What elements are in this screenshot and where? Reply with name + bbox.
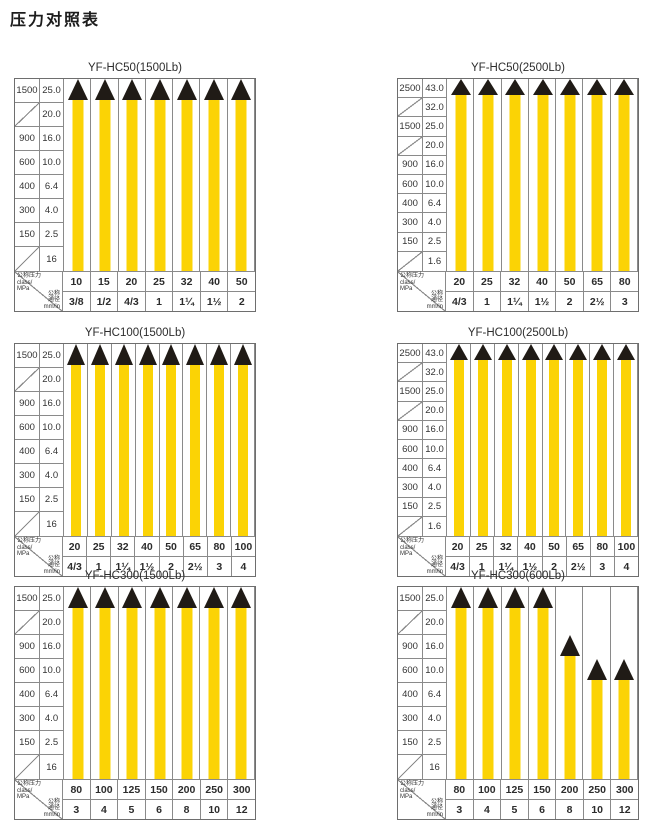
pressure-table: 150025.020.090016.060010.04006.43004.015… [14,343,256,577]
axis-mpa-cell: 2.5 [423,731,446,754]
dn-value-row: 3/81/24/311¼1½2 [63,292,255,311]
class-value-cell: 65 [183,537,207,556]
bar [619,679,630,779]
class-value-cell: 32 [500,272,528,291]
axis-diagonal-cell [398,252,423,271]
class-value-cell: 65 [583,272,611,291]
class-value-row: 80100125150200250300 [63,780,255,800]
class-value-cell: 20 [63,537,86,556]
axis-mpa-cell: 25.0 [40,587,63,610]
axis-mpa-cell: 20.0 [40,611,63,634]
axis-mpa-cell: 32.0 [423,363,446,381]
axis-row: 3004.0 [398,707,446,731]
axis-mpa-cell: 16 [40,755,63,779]
chart-yf-hc300-600lb: YF-HC300(600Lb)150025.020.090016.060010.… [397,568,639,820]
axis-row: 60010.0 [15,151,63,175]
axis-row: 150025.0 [398,382,446,401]
axis-row: 4006.4 [398,459,446,478]
axis-mpa-cell: 10.0 [40,659,63,682]
bottom-rows: 公称压力class/MPa公称通径mm/in801001251502002503… [398,779,638,819]
bar [154,607,165,779]
dn-value-cell: 3/8 [63,292,90,311]
dn-value-cell: 1½ [200,292,228,311]
bar [455,94,466,271]
axis-mpa-cell: 16.0 [423,156,446,174]
triangle-marker-icon [560,635,580,656]
triangle-marker-icon [478,587,498,608]
chart-yf-hc100-2500lb: YF-HC100(2500Lb)250043.032.0150025.020.0… [397,325,639,577]
axis-diagonal-cell [398,137,423,155]
axis-mpa-cell: 6.4 [40,175,63,198]
triangle-marker-icon [210,344,228,365]
triangle-marker-icon [95,79,115,100]
axis-class-cell: 1500 [398,382,423,400]
bar [99,607,110,779]
axis-diagonal-cell [398,611,423,634]
axis-mpa-cell: 32.0 [423,98,446,116]
triangle-marker-icon [614,79,634,95]
corner-pressure-line: 公称压力 [400,538,424,545]
axis-class-cell: 900 [398,635,423,658]
axis-mpa-cell: 20.0 [40,103,63,126]
triangle-marker-icon [150,79,170,100]
bottom-rows: 公称压力class/MPa公称通径mm/in801001251502002503… [15,779,255,819]
corner-cell: 公称压力class/MPa公称通径mm/in [15,780,63,819]
corner-bore-line: mm/in [44,812,60,819]
class-value-cell: 80 [446,780,473,799]
bar [592,679,603,779]
corner-cell: 公称压力class/MPa公称通径mm/in [15,272,63,311]
bar [502,359,512,536]
axis-class-cell: 150 [15,488,40,511]
dn-value-cell: 3 [610,292,638,311]
axis-row: 150025.0 [15,79,63,103]
triangle-marker-icon [478,79,498,95]
axis-mpa-cell: 16.0 [40,392,63,415]
bar [537,94,548,271]
bottom-value-rows: 80100125150200250300345681012 [446,780,638,819]
y-axis: 150025.020.090016.060010.04006.43004.015… [398,587,446,779]
axis-row: 60010.0 [398,659,446,683]
chart-title: YF-HC300(1500Lb) [14,568,256,584]
axis-diagonal-cell [15,368,40,391]
class-value-cell: 65 [566,537,590,556]
axis-mpa-cell: 25.0 [40,79,63,102]
axis-mpa-cell: 10.0 [423,175,446,193]
dn-value-cell: 12 [227,800,255,819]
pressure-table: 250043.032.0150025.020.090016.060010.040… [397,78,639,312]
axis-mpa-cell: 4.0 [40,464,63,487]
axis-row: 90016.0 [15,392,63,416]
triangle-marker-icon [231,587,251,608]
bar [99,99,110,271]
corner-bore-line: mm/in [44,304,60,311]
class-value-cell: 40 [200,272,228,291]
axis-row: 150025.0 [15,344,63,368]
axis-mpa-cell: 16 [40,247,63,271]
dn-value-cell: 1 [145,292,173,311]
class-value-cell: 100 [473,780,501,799]
y-axis: 150025.020.090016.060010.04006.43004.015… [15,79,63,271]
bar [549,359,559,536]
bar [209,607,220,779]
axis-class-cell: 150 [15,223,40,246]
triangle-marker-icon [587,79,607,95]
class-value-cell: 300 [227,780,255,799]
axis-row: 20.0 [15,368,63,392]
bar [95,364,105,536]
bar [482,94,493,271]
axis-mpa-cell: 20.0 [423,402,446,420]
axis-mpa-cell: 16.0 [40,635,63,658]
axis-row: 4006.4 [15,440,63,464]
corner-bore-label: 公称通径mm/in [44,291,60,311]
axis-row: 32.0 [398,98,446,117]
axis-row: 20.0 [15,611,63,635]
class-value-cell: 25 [145,272,173,291]
axis-row: 250043.0 [398,344,446,363]
class-value-cell: 200 [555,780,583,799]
axis-mpa-cell: 6.4 [40,440,63,463]
chart-yf-hc50-2500lb: YF-HC50(2500Lb)250043.032.0150025.020.09… [397,60,639,312]
axis-diagonal-cell [398,755,423,779]
class-value-cell: 40 [528,272,556,291]
axis-class-cell: 600 [398,175,423,193]
axis-row: 4006.4 [398,194,446,213]
dn-value-cell: 10 [200,800,228,819]
triangle-marker-icon [474,344,492,360]
triangle-marker-icon [617,344,635,360]
bar [564,655,575,779]
plot-area [446,587,638,779]
dn-value-cell: 3 [446,800,473,819]
corner-pressure-label: 公称压力class/MPa [400,781,424,801]
axis-diagonal-cell [15,611,40,634]
axis-diagonal-cell [398,517,423,536]
axis-class-cell: 400 [398,683,423,706]
axis-mpa-cell: 20.0 [423,611,446,634]
y-axis: 250043.032.0150025.020.090016.060010.040… [398,79,446,271]
axis-class-cell: 300 [398,707,423,730]
axis-row: 20.0 [398,137,446,156]
corner-pressure-line: 公称压力 [400,781,424,788]
dn-value-cell: 2 [555,292,583,311]
page-title: 压力对照表 [10,6,100,30]
triangle-marker-icon [68,79,88,100]
class-value-row: 80100125150200250300 [446,780,638,800]
triangle-marker-icon [505,587,525,608]
axis-mpa-cell: 4.0 [423,478,446,496]
dn-value-cell: 4 [473,800,501,819]
class-value-cell: 25 [86,537,110,556]
axis-mpa-cell: 1.6 [423,252,446,271]
axis-diagonal-cell [15,247,40,271]
plot-area [446,79,638,271]
axis-class-cell: 300 [398,213,423,231]
chart-yf-hc300-1500lb: YF-HC300(1500Lb)150025.020.090016.060010… [14,568,256,820]
axis-mpa-cell: 2.5 [40,223,63,246]
axis-row: 3004.0 [15,464,63,488]
triangle-marker-icon [234,344,252,365]
axis-class-cell: 400 [15,440,40,463]
triangle-marker-icon [177,79,197,100]
corner-pressure-line: MPa [17,286,41,293]
class-value-cell: 25 [469,537,493,556]
corner-bore-label: 公称通径mm/in [44,799,60,819]
class-value-cell: 10 [63,272,90,291]
axis-diagonal-cell [15,103,40,126]
axis-mpa-cell: 4.0 [40,707,63,730]
axis-mpa-cell: 16.0 [423,635,446,658]
triangle-marker-icon [91,344,109,365]
bar [455,607,466,779]
axis-row: 90016.0 [15,127,63,151]
axis-row: 90016.0 [398,156,446,175]
bar [564,94,575,271]
class-value-cell: 40 [517,537,541,556]
triangle-marker-icon [122,79,142,100]
triangle-marker-icon [560,79,580,95]
dn-value-cell: 4/3 [446,292,473,311]
axis-diagonal-cell [15,755,40,779]
class-value-cell: 40 [134,537,158,556]
triangle-marker-icon [115,344,133,365]
axis-mpa-cell: 6.4 [423,459,446,477]
axis-class-cell: 600 [15,416,40,439]
class-value-cell: 80 [590,537,614,556]
class-value-cell: 125 [117,780,145,799]
bar [72,99,83,271]
pressure-table: 150025.020.090016.060010.04006.43004.015… [14,78,256,312]
bar [143,364,153,536]
class-value-cell: 50 [159,537,183,556]
dn-value-cell: 4/3 [117,292,145,311]
bar [119,364,129,536]
axis-mpa-cell: 16.0 [423,421,446,439]
dn-value-cell: 12 [610,800,638,819]
corner-pressure-line: MPa [400,794,424,801]
bottom-rows: 公称压力class/MPa公称通径mm/in202532405065804/31… [398,271,638,311]
axis-mpa-cell: 16.0 [40,127,63,150]
bar [166,364,176,536]
axis-row: 60010.0 [15,416,63,440]
class-value-cell: 32 [110,537,134,556]
bar [621,359,631,536]
dn-value-cell: 6 [145,800,173,819]
bar [510,607,521,779]
class-value-row: 10152025324050 [63,272,255,292]
dn-value-cell: 5 [500,800,528,819]
axis-class-cell: 400 [15,683,40,706]
axis-row: 3004.0 [15,707,63,731]
axis-row: 20.0 [15,103,63,127]
axis-row: 4006.4 [15,175,63,199]
axis-mpa-cell: 20.0 [423,137,446,155]
chart-title: YF-HC100(1500Lb) [14,325,256,341]
triangle-marker-icon [451,587,471,608]
dn-value-cell: 1¼ [500,292,528,311]
chart-title: YF-HC50(1500Lb) [14,60,256,76]
axis-class-cell: 150 [398,731,423,754]
axis-row: 16 [15,512,63,536]
axis-class-cell: 1500 [398,587,423,610]
axis-row: 1502.5 [15,223,63,247]
axis-row: 150025.0 [15,587,63,611]
axis-class-cell: 900 [15,635,40,658]
bar [573,359,583,536]
corner-bore-line: mm/in [427,304,443,311]
axis-mpa-cell: 10.0 [40,151,63,174]
axis-class-cell: 1500 [398,117,423,135]
bottom-value-rows: 101520253240503/81/24/311¼1½2 [63,272,255,311]
axis-mpa-cell: 4.0 [423,213,446,231]
triangle-marker-icon [177,587,197,608]
axis-row: 1502.5 [398,498,446,517]
y-axis: 250043.032.0150025.020.090016.060010.040… [398,344,446,536]
axis-class-cell: 300 [15,707,40,730]
corner-pressure-line: MPa [400,286,424,293]
class-value-cell: 150 [528,780,556,799]
dn-value-row: 345681012 [63,800,255,819]
axis-row: 60010.0 [398,175,446,194]
triangle-marker-icon [505,79,525,95]
axis-diagonal-cell [15,512,40,536]
axis-mpa-cell: 16 [423,755,446,779]
class-value-cell: 250 [200,780,228,799]
dn-value-cell: 6 [528,800,556,819]
corner-pressure-line: 公称压力 [17,781,41,788]
axis-class-cell: 600 [15,659,40,682]
axis-mpa-cell: 25.0 [423,587,446,610]
class-value-cell: 15 [90,272,118,291]
axis-class-cell: 300 [398,478,423,496]
axis-class-cell: 900 [398,421,423,439]
pressure-comparison-page: 压力对照表 YF-HC50(1500Lb)150025.020.090016.0… [0,0,660,820]
axis-mpa-cell: 2.5 [40,488,63,511]
axis-row: 3004.0 [398,478,446,497]
axis-row: 1502.5 [398,731,446,755]
dn-value-cell: 8 [555,800,583,819]
bar [214,364,224,536]
axis-row: 90016.0 [398,421,446,440]
triangle-marker-icon [569,344,587,360]
chart-title: YF-HC300(600Lb) [397,568,639,584]
axis-class-cell: 300 [15,464,40,487]
axis-row: 20.0 [398,611,446,635]
dn-value-row: 4/311¼1½22½3 [446,292,638,311]
triangle-marker-icon [587,659,607,680]
triangle-marker-icon [204,79,224,100]
axis-mpa-cell: 10.0 [40,416,63,439]
triangle-marker-icon [95,587,115,608]
plot-area [63,344,255,536]
corner-pressure-line: 公称压力 [400,273,424,280]
plot-area [63,79,255,271]
axis-row: 1502.5 [15,488,63,512]
axis-mpa-cell: 6.4 [40,683,63,706]
pressure-table: 150025.020.090016.060010.04006.43004.015… [14,586,256,820]
axis-row: 250043.0 [398,79,446,98]
bar [482,607,493,779]
axis-mpa-cell: 4.0 [423,707,446,730]
dn-value-cell: 3 [63,800,90,819]
class-value-cell: 100 [614,537,638,556]
axis-mpa-cell: 16 [40,512,63,536]
class-value-cell: 80 [63,780,90,799]
axis-class-cell: 400 [15,175,40,198]
axis-row: 90016.0 [398,635,446,659]
axis-mpa-cell: 43.0 [423,344,446,362]
class-value-cell: 32 [493,537,517,556]
axis-class-cell: 600 [398,440,423,458]
axis-class-cell: 2500 [398,79,423,97]
axis-mpa-cell: 2.5 [40,731,63,754]
class-value-cell: 20 [117,272,145,291]
corner-pressure-label: 公称压力class/MPa [17,781,41,801]
triangle-marker-icon [68,587,88,608]
bar [181,607,192,779]
pressure-table: 250043.032.0150025.020.090016.060010.040… [397,343,639,577]
bar [154,99,165,271]
bar [510,94,521,271]
corner-cell: 公称压力class/MPa公称通径mm/in [398,272,446,311]
class-value-row: 20253240506580100 [63,537,255,557]
bar [181,99,192,271]
axis-mpa-cell: 25.0 [40,344,63,367]
axis-mpa-cell: 4.0 [40,199,63,222]
axis-mpa-cell: 20.0 [40,368,63,391]
axis-mpa-cell: 1.6 [423,517,446,536]
axis-row: 60010.0 [15,659,63,683]
axis-row: 150025.0 [398,117,446,136]
bar [190,364,200,536]
axis-row: 3004.0 [398,213,446,232]
bar [526,359,536,536]
triangle-marker-icon [450,344,468,360]
axis-class-cell: 150 [398,498,423,516]
corner-pressure-label: 公称压力class/MPa [400,273,424,293]
class-value-cell: 50 [227,272,255,291]
triangle-marker-icon [614,659,634,680]
axis-class-cell: 150 [15,731,40,754]
dn-value-cell: 1½ [528,292,556,311]
bottom-value-rows: 80100125150200250300345681012 [63,780,255,819]
class-value-row: 20253240506580100 [446,537,638,557]
class-value-cell: 80 [610,272,638,291]
plot-area [63,587,255,779]
corner-pressure-line: MPa [17,551,41,558]
chart-title: YF-HC50(2500Lb) [397,60,639,76]
axis-class-cell: 400 [398,194,423,212]
axis-mpa-cell: 10.0 [423,440,446,458]
class-value-cell: 300 [610,780,638,799]
axis-diagonal-cell [398,98,423,116]
bar [127,99,138,271]
class-value-cell: 100 [231,537,255,556]
bar [597,359,607,536]
axis-row: 4006.4 [398,683,446,707]
axis-mpa-cell: 2.5 [423,233,446,251]
axis-mpa-cell: 6.4 [423,194,446,212]
axis-row: 32.0 [398,363,446,382]
triangle-marker-icon [150,587,170,608]
class-value-row: 20253240506580 [446,272,638,292]
dn-value-cell: 4 [90,800,118,819]
axis-class-cell: 400 [398,459,423,477]
triangle-marker-icon [533,587,553,608]
corner-bore-line: mm/in [427,812,443,819]
triangle-marker-icon [204,587,224,608]
